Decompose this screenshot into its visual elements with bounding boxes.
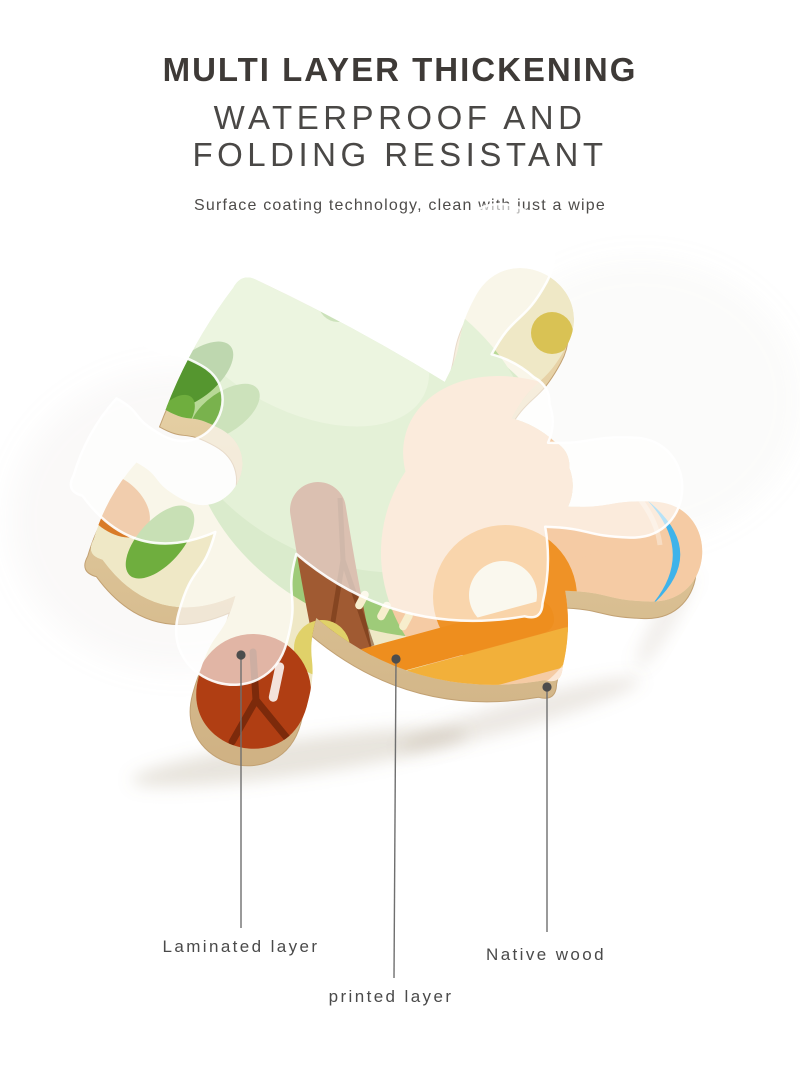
leader-dot xyxy=(236,650,245,659)
label-printed-layer: printed layer xyxy=(329,987,454,1007)
product-infographic: MULTI LAYER THICKENING WATERPROOF AND FO… xyxy=(0,0,800,1091)
leader-line xyxy=(394,659,396,978)
label-native-wood: Native wood xyxy=(486,945,606,965)
label-laminated-layer: Laminated layer xyxy=(163,937,320,957)
leader-dot xyxy=(542,682,551,691)
leader-dot xyxy=(391,654,400,663)
puzzle-piece-illustration xyxy=(0,0,800,1091)
scene-svg xyxy=(0,0,800,1091)
